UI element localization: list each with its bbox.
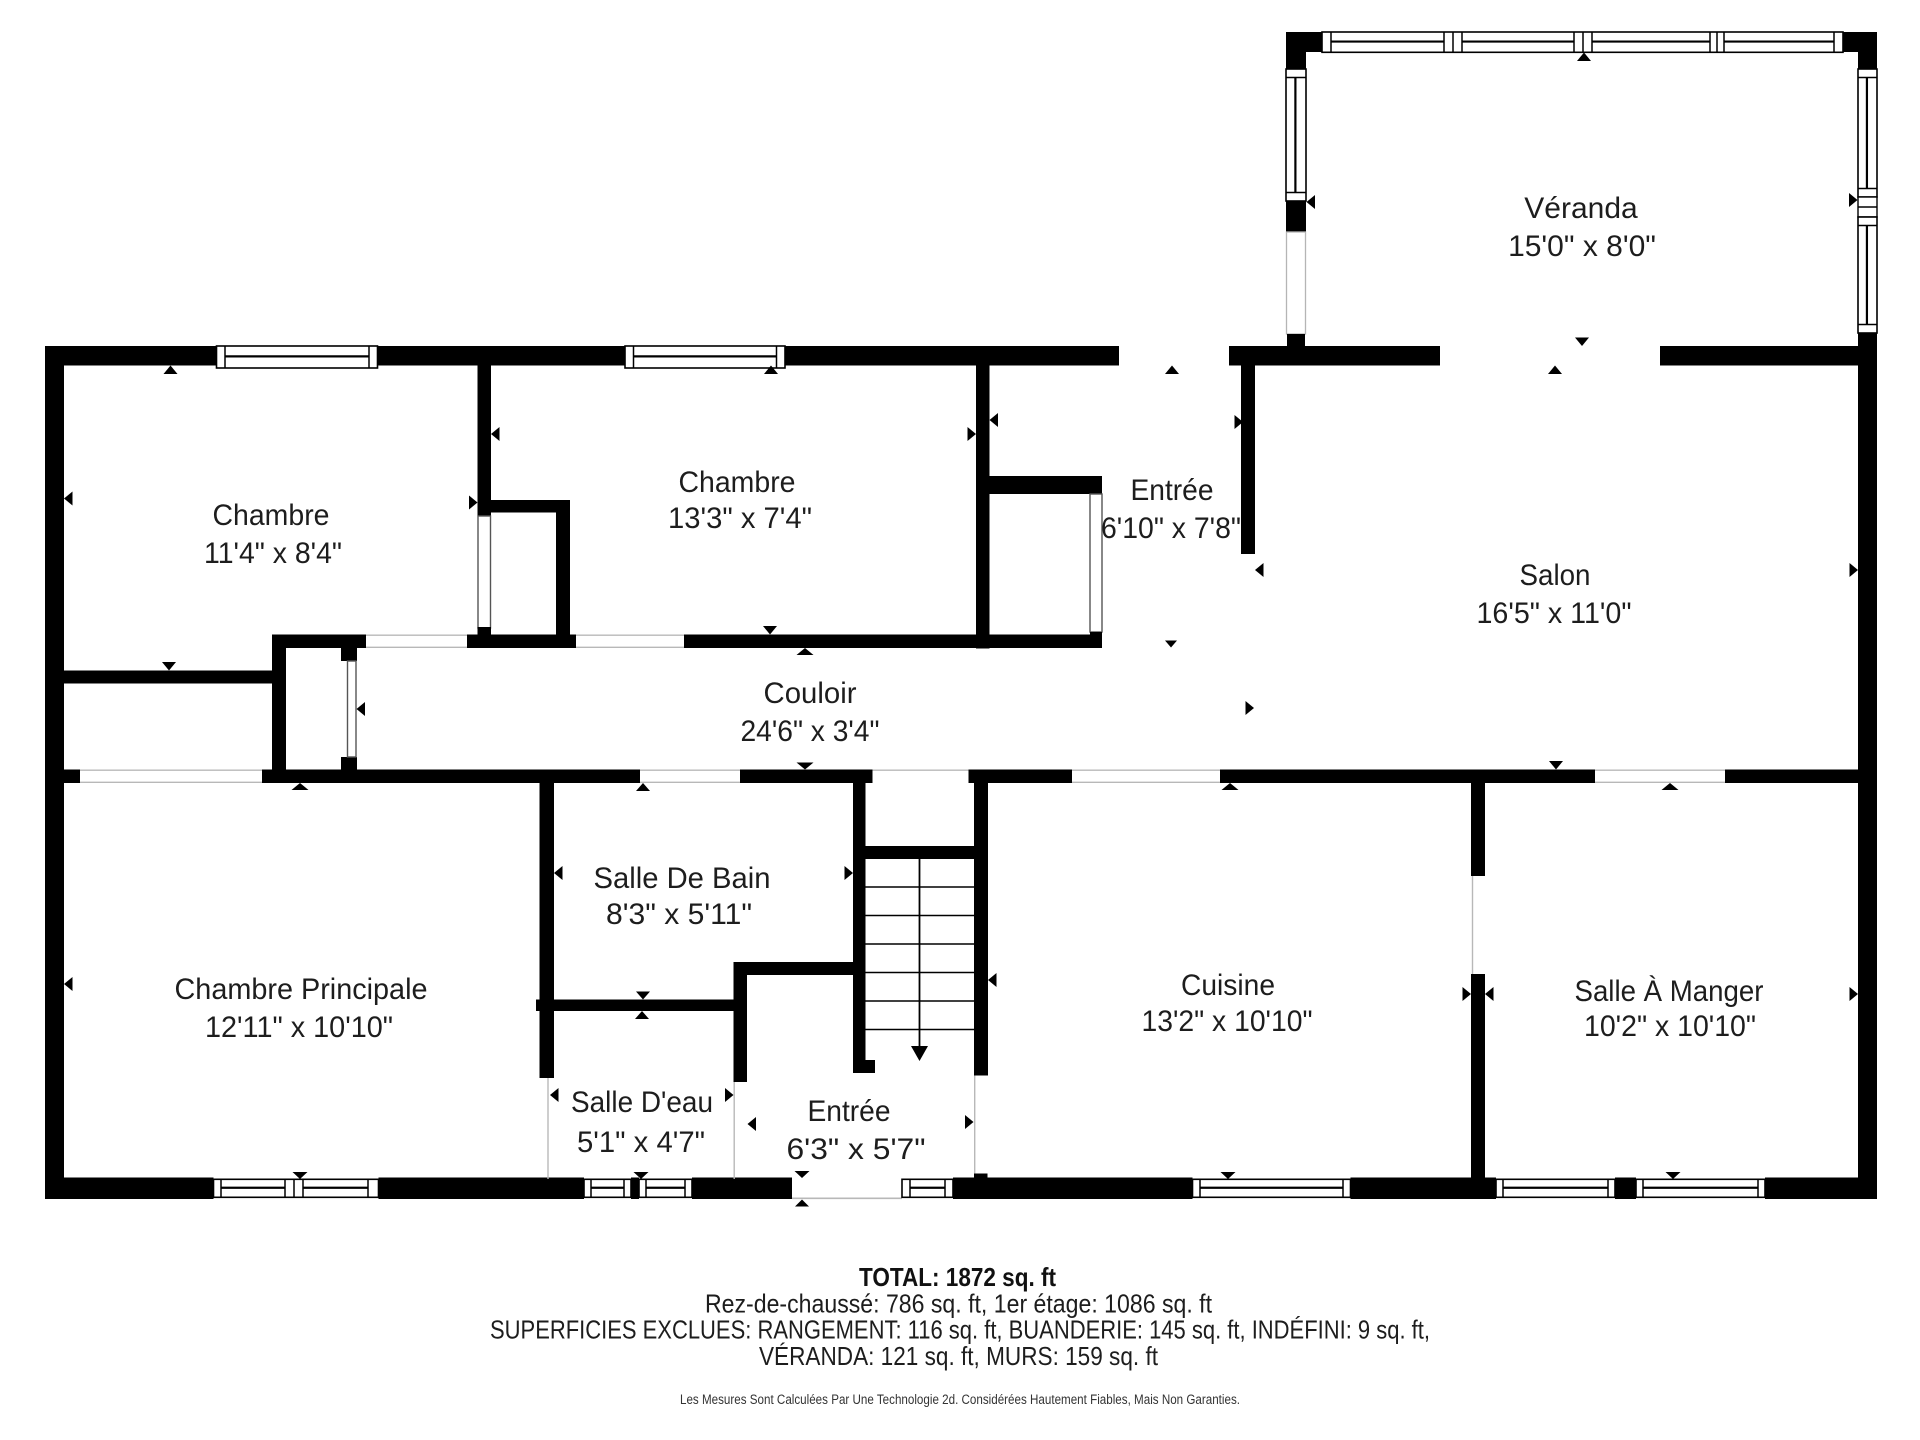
svg-text:Salon: Salon bbox=[1520, 559, 1591, 592]
svg-text:Chambre: Chambre bbox=[679, 466, 796, 499]
svg-text:Salle De Bain: Salle De Bain bbox=[594, 862, 771, 895]
svg-text:15'0" x 8'0": 15'0" x 8'0" bbox=[1508, 230, 1656, 263]
svg-text:16'5" x 11'0": 16'5" x 11'0" bbox=[1477, 597, 1632, 630]
svg-text:24'6" x 3'4": 24'6" x 3'4" bbox=[741, 715, 880, 748]
svg-text:Couloir: Couloir bbox=[764, 677, 857, 710]
svg-text:6'3" x 5'7": 6'3" x 5'7" bbox=[787, 1133, 926, 1166]
svg-text:SUPERFICIES EXCLUES: RANGEMENT: SUPERFICIES EXCLUES: RANGEMENT: 116 sq. … bbox=[490, 1315, 1430, 1345]
svg-text:Véranda: Véranda bbox=[1524, 192, 1638, 225]
svg-text:Les Mesures Sont Calculées Par: Les Mesures Sont Calculées Par Une Techn… bbox=[680, 1392, 1240, 1407]
svg-text:8'3" x 5'11": 8'3" x 5'11" bbox=[606, 898, 752, 931]
svg-text:VÉRANDA: 121 sq. ft, MURS: 159: VÉRANDA: 121 sq. ft, MURS: 159 sq. ft bbox=[759, 1341, 1159, 1371]
svg-text:13'2" x 10'10": 13'2" x 10'10" bbox=[1142, 1005, 1313, 1038]
svg-text:TOTAL: 1872 sq. ft: TOTAL: 1872 sq. ft bbox=[859, 1262, 1056, 1292]
svg-text:Chambre Principale: Chambre Principale bbox=[175, 973, 428, 1006]
svg-text:11'4" x 8'4": 11'4" x 8'4" bbox=[204, 537, 342, 570]
svg-text:Chambre: Chambre bbox=[213, 499, 330, 532]
svg-text:Entrée: Entrée bbox=[808, 1095, 891, 1128]
svg-text:5'1" x 4'7": 5'1" x 4'7" bbox=[577, 1126, 705, 1159]
svg-text:10'2" x 10'10": 10'2" x 10'10" bbox=[1584, 1010, 1756, 1043]
svg-text:Cuisine: Cuisine bbox=[1181, 969, 1275, 1002]
svg-text:Salle D'eau: Salle D'eau bbox=[571, 1086, 713, 1119]
svg-text:13'3" x 7'4": 13'3" x 7'4" bbox=[668, 502, 812, 535]
svg-text:Salle À Manger: Salle À Manger bbox=[1575, 975, 1764, 1008]
svg-text:Entrée: Entrée bbox=[1131, 474, 1214, 507]
svg-text:6'10" x 7'8": 6'10" x 7'8" bbox=[1101, 512, 1241, 545]
svg-text:12'11" x 10'10": 12'11" x 10'10" bbox=[205, 1011, 393, 1044]
